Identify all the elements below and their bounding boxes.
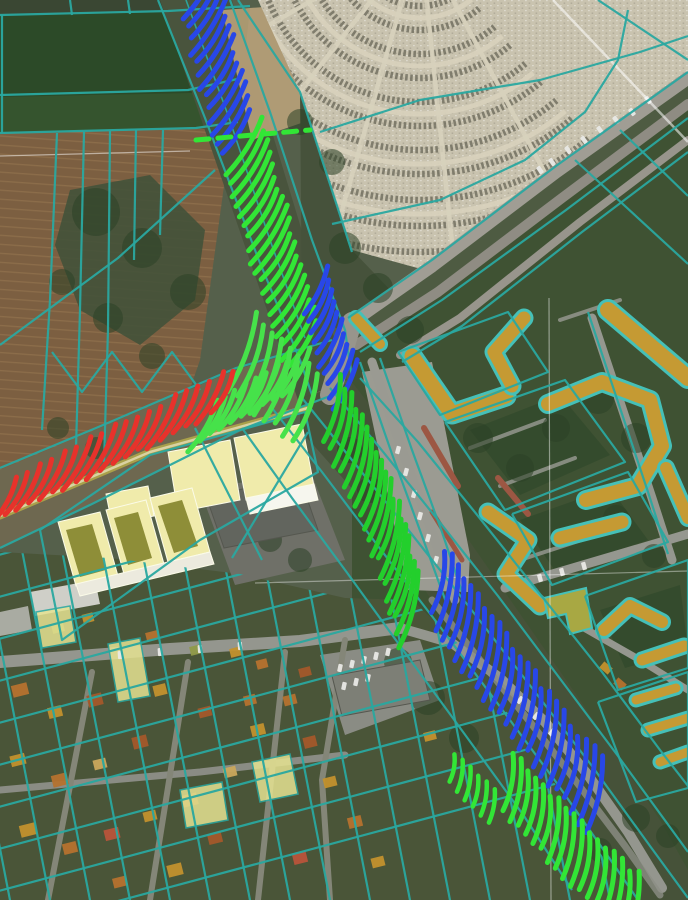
- tree-canopy: [170, 274, 206, 310]
- tree-canopy: [506, 454, 534, 482]
- tree-canopy: [72, 188, 120, 236]
- pale-parcel: [252, 754, 298, 802]
- tree-canopy: [288, 548, 312, 572]
- tree-canopy: [542, 414, 570, 442]
- tree-canopy: [47, 417, 69, 439]
- map-viewport[interactable]: [0, 0, 688, 900]
- tree-canopy: [329, 232, 361, 264]
- tree-canopy: [49, 269, 75, 295]
- map-canvas[interactable]: [0, 0, 688, 900]
- tree-canopy: [463, 423, 493, 453]
